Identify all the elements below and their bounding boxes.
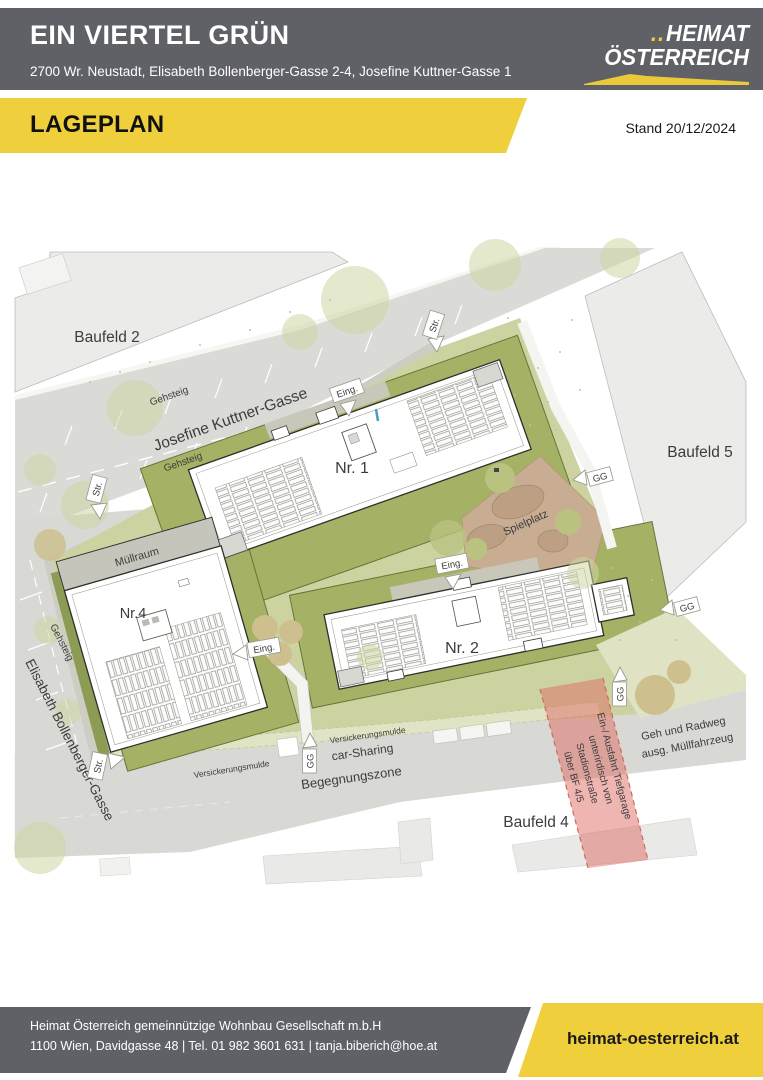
logo-line2: ÖSTERREICH bbox=[574, 45, 749, 69]
footer-website[interactable]: heimat-oesterreich.at bbox=[543, 1029, 763, 1049]
header: EIN VIERTEL GRÜN 2700 Wr. Neustadt, Elis… bbox=[0, 8, 763, 90]
label-nr4: Nr.4 bbox=[120, 606, 147, 622]
svg-text:GG: GG bbox=[679, 601, 696, 615]
label-baufeld-5: Baufeld 5 bbox=[667, 444, 733, 461]
svg-text:GG: GG bbox=[616, 687, 627, 702]
label-baufeld-4: Baufeld 4 bbox=[503, 814, 569, 831]
parcel-baufeld-4c bbox=[398, 818, 433, 864]
label-nr1: Nr. 1 bbox=[335, 460, 369, 477]
site-plan: Müllraum Ein-/ Ausfahrt Tiefgarage unter… bbox=[0, 0, 763, 1080]
page-title: EIN VIERTEL GRÜN bbox=[30, 20, 289, 51]
footer-contact: 1100 Wien, Davidgasse 48 | Tel. 01 982 3… bbox=[30, 1039, 437, 1053]
plan-date: Stand 20/12/2024 bbox=[625, 120, 736, 136]
label-nr2: Nr. 2 bbox=[445, 640, 479, 657]
section-banner: LAGEPLAN bbox=[0, 98, 534, 153]
label-baufeld-2: Baufeld 2 bbox=[74, 329, 140, 346]
page: Müllraum Ein-/ Ausfahrt Tiefgarage unter… bbox=[0, 0, 763, 1080]
svg-text:GG: GG bbox=[592, 471, 609, 485]
svg-text:GG: GG bbox=[306, 754, 317, 769]
section-title: LAGEPLAN bbox=[30, 111, 164, 139]
footer-company: Heimat Österreich gemeinnützige Wohnbau … bbox=[30, 1019, 381, 1033]
logo-line1: ..HEIMAT bbox=[574, 21, 749, 45]
logo-dots-icon: .. bbox=[651, 20, 665, 46]
project-address: 2700 Wr. Neustadt, Elisabeth Bollenberge… bbox=[30, 64, 512, 79]
brand-logo: ..HEIMAT ÖSTERREICH bbox=[574, 21, 749, 85]
footer-website-badge: heimat-oesterreich.at bbox=[518, 1003, 763, 1077]
logo-swoosh-icon bbox=[584, 72, 749, 85]
parcel-baufeld-4a bbox=[263, 846, 422, 884]
footer: Heimat Österreich gemeinnützige Wohnbau … bbox=[0, 1007, 536, 1073]
logo-heimat: HEIMAT bbox=[666, 20, 749, 46]
